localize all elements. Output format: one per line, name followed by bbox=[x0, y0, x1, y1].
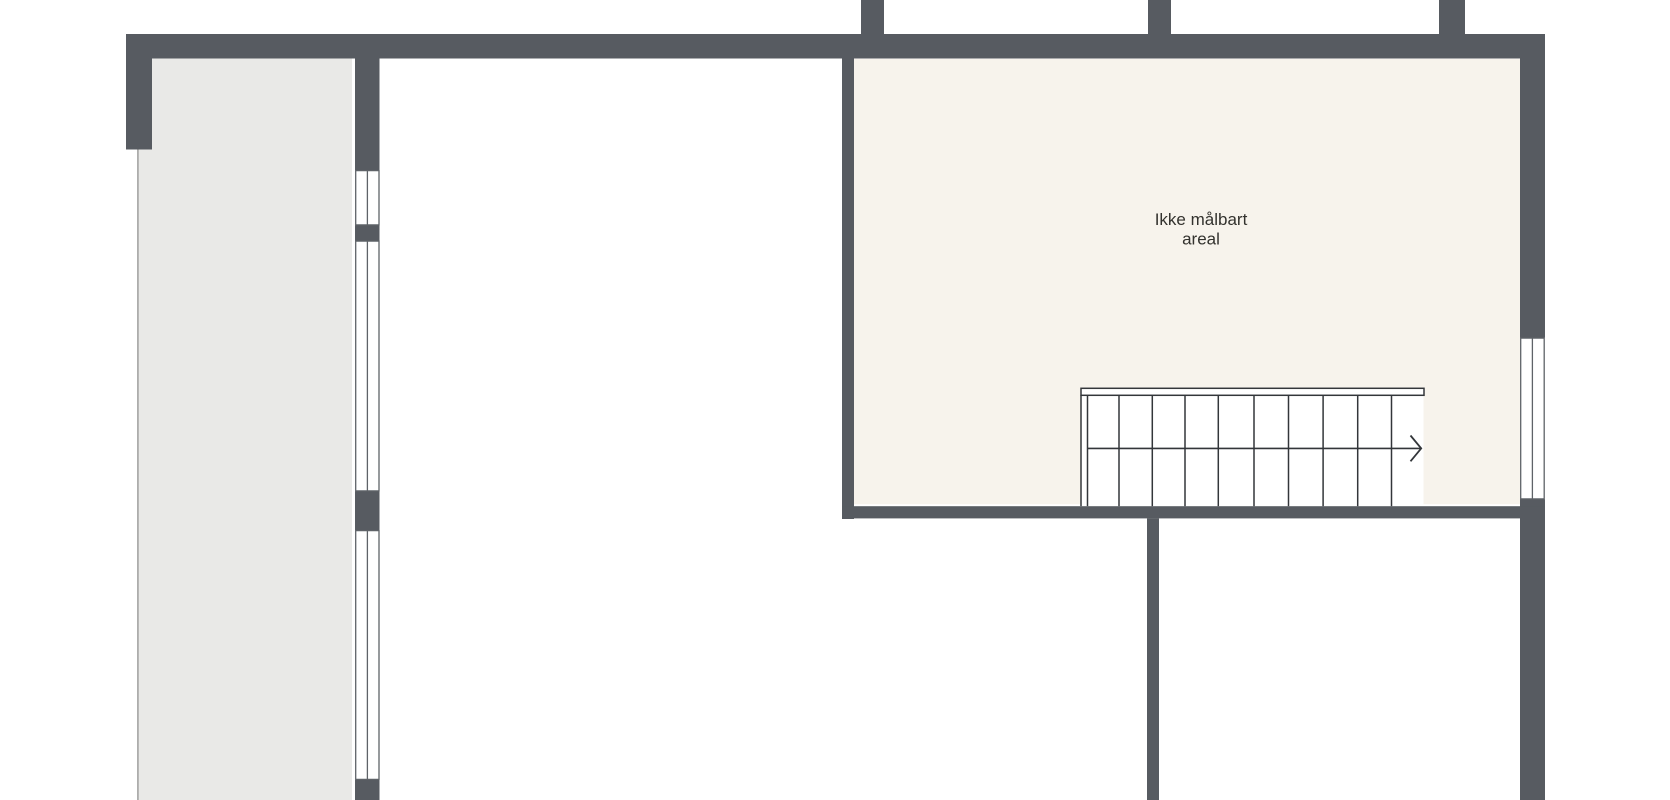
svg-text:Ikke målbart: Ikke målbart bbox=[1155, 210, 1248, 229]
svg-text:areal: areal bbox=[1182, 230, 1220, 249]
